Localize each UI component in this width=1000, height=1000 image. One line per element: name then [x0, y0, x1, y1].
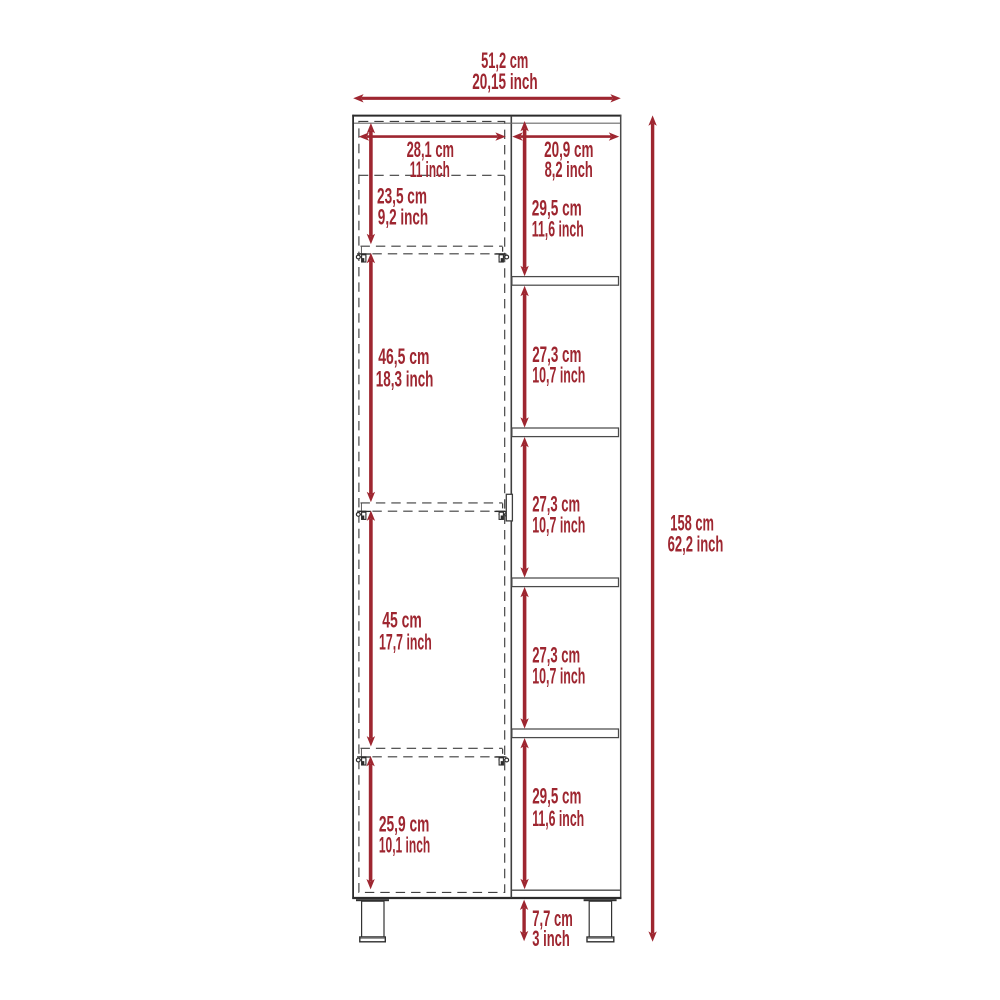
svg-text:3 inch: 3 inch: [532, 926, 570, 951]
svg-text:62,2 inch: 62,2 inch: [668, 532, 724, 557]
svg-text:11 inch: 11 inch: [410, 157, 450, 182]
svg-text:18,3 inch: 18,3 inch: [376, 366, 434, 391]
svg-text:20,15 inch: 20,15 inch: [472, 69, 538, 94]
svg-text:8,2 inch: 8,2 inch: [545, 157, 593, 182]
svg-text:29,5 cm: 29,5 cm: [532, 784, 581, 809]
svg-text:11,6 inch: 11,6 inch: [532, 217, 584, 242]
svg-text:10,7 inch: 10,7 inch: [532, 513, 585, 538]
svg-text:10,7 inch: 10,7 inch: [532, 363, 585, 388]
svg-text:46,5 cm: 46,5 cm: [378, 344, 429, 369]
svg-text:10,1 inch: 10,1 inch: [379, 832, 430, 857]
svg-text:10,7 inch: 10,7 inch: [532, 664, 585, 689]
svg-text:11,6 inch: 11,6 inch: [532, 806, 584, 831]
svg-text:17,7 inch: 17,7 inch: [379, 630, 432, 655]
svg-text:9,2 inch: 9,2 inch: [378, 204, 428, 229]
